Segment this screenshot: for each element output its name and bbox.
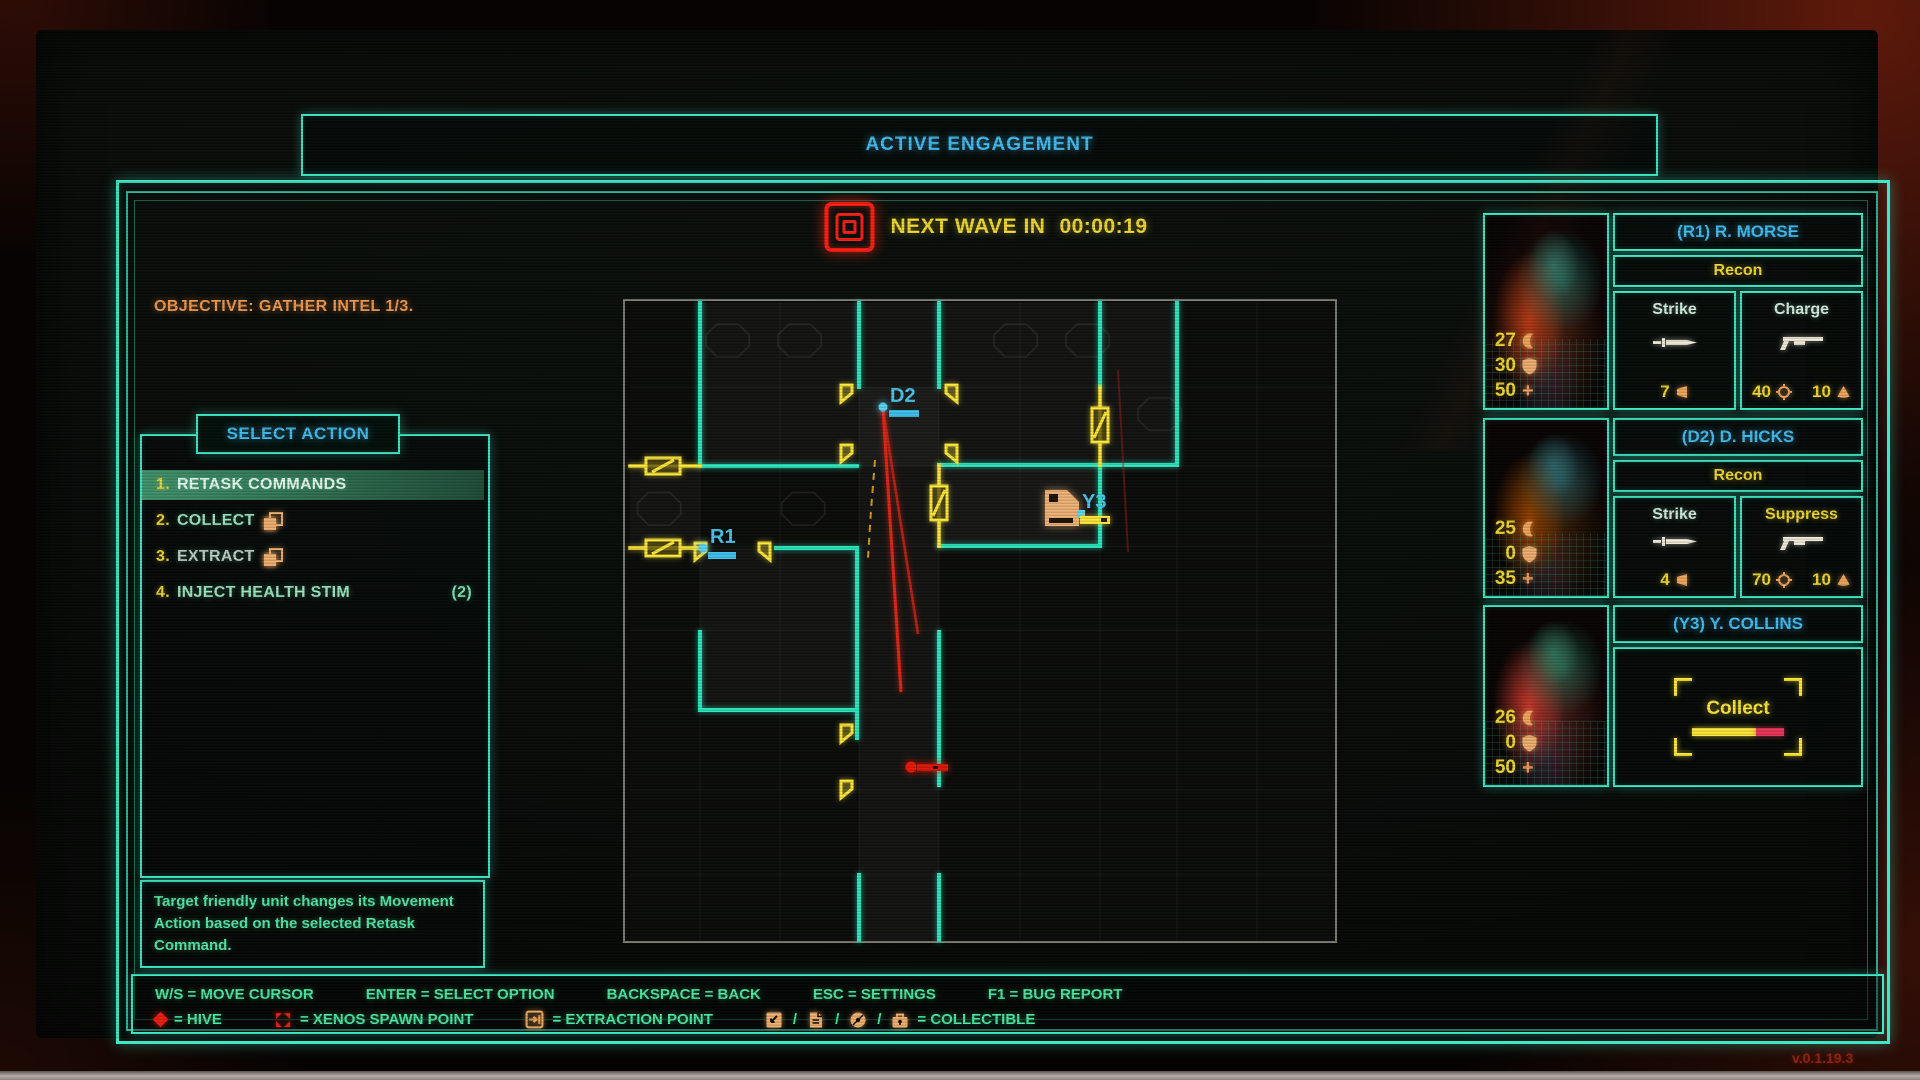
accuracy-icon <box>1776 384 1792 400</box>
hint-select-option: ENTER = SELECT OPTION <box>366 986 555 1003</box>
unit-portrait: 26 0 50 + <box>1483 605 1609 787</box>
claw-icon <box>1522 333 1538 349</box>
unit-action-box: Collect <box>1613 647 1863 787</box>
xenos-spawn-icon <box>274 1011 292 1029</box>
collect-label: Collect <box>1706 698 1769 720</box>
shield-stat: 30 <box>1490 355 1516 377</box>
unit-class: Recon <box>1613 255 1863 287</box>
ability-strike: Strike 4 <box>1613 496 1736 598</box>
hint-move-cursor: W/S = MOVE CURSOR <box>155 986 314 1003</box>
unit-label-r1: R1 <box>710 526 736 548</box>
legend-xenos-spawn: = XENOS SPAWN POINT <box>300 1011 474 1028</box>
blast-icon <box>1836 572 1851 587</box>
collectible-disc-icon <box>849 1011 867 1029</box>
accuracy-icon <box>1776 572 1792 588</box>
unit-label-d2: D2 <box>890 385 916 407</box>
unit-name: (R1) R. MORSE <box>1613 213 1863 251</box>
tactical-map: D2 R1 Y3 <box>616 290 1356 950</box>
page-title: ACTIVE ENGAGEMENT <box>865 134 1093 156</box>
claw-icon <box>1522 710 1538 726</box>
squad-card-y3: 26 0 50 + (Y3) Y. COLLINS Collect <box>1483 605 1863 787</box>
health-plus-icon: + <box>1522 569 1534 589</box>
unit-name: (D2) D. HICKS <box>1613 418 1863 456</box>
next-wave-timer: 00:00:19 <box>1059 215 1147 239</box>
blast-icon <box>1836 384 1851 399</box>
action-panel-title: SELECT ACTION <box>227 424 370 444</box>
unit-name: (Y3) Y. COLLINS <box>1613 605 1863 643</box>
shield-stat: 0 <box>1490 543 1516 565</box>
bracket-corner <box>1674 678 1692 696</box>
shotgun-icon <box>1780 333 1824 353</box>
shield-icon <box>1522 358 1537 375</box>
collectible-pages-icon <box>264 548 283 566</box>
desk-edge <box>0 1071 1920 1080</box>
attack-stat: 27 <box>1490 330 1516 352</box>
ability-strike: Strike 7 <box>1613 291 1736 410</box>
health-plus-icon: + <box>1522 758 1534 778</box>
legend-extraction: = EXTRACTION POINT <box>552 1011 712 1028</box>
hive-icon <box>153 1012 169 1028</box>
attack-stat: 25 <box>1490 518 1516 540</box>
hive-icon <box>824 202 874 252</box>
health-stat: 35 <box>1490 568 1516 590</box>
objective-text: OBJECTIVE: GATHER INTEL 1/3. <box>154 298 414 316</box>
health-stat: 50 <box>1490 757 1516 779</box>
menu-item-extract[interactable]: 3. EXTRACT <box>142 542 484 572</box>
shield-icon <box>1522 735 1537 752</box>
action-menu: 1. RETASK COMMANDS 2. COLLECT 3. EXTRACT… <box>142 470 484 608</box>
unit-label-y3: Y3 <box>1082 491 1106 513</box>
collectible-case-icon <box>891 1011 909 1029</box>
action-description-box: Target friendly unit changes its Movemen… <box>140 880 485 968</box>
ammo-icon <box>1675 385 1689 399</box>
health-plus-icon: + <box>1522 381 1534 401</box>
bracket-corner <box>1784 738 1802 756</box>
attack-stat: 26 <box>1490 707 1516 729</box>
ammo-icon <box>1675 573 1689 587</box>
shield-icon <box>1522 546 1537 563</box>
unit-portrait: 27 30 50 + <box>1483 213 1609 410</box>
unit-class: Recon <box>1613 460 1863 492</box>
claw-icon <box>1522 521 1538 537</box>
hints-bar: W/S = MOVE CURSOR ENTER = SELECT OPTION … <box>131 974 1884 1034</box>
ability-suppress: Suppress 70 10 <box>1740 496 1863 598</box>
hint-settings: ESC = SETTINGS <box>813 986 936 1003</box>
squad-card-d2: 25 0 35 + (D2) D. HICKS Recon Strike 4 <box>1483 418 1863 598</box>
version-label: v.0.1.19.3 <box>1792 1050 1853 1066</box>
menu-item-inject-health-stim[interactable]: 4. INJECT HEALTH STIM (2) <box>142 578 484 608</box>
legend-row: = HIVE = XENOS SPAWN POINT = EXTRACTION … <box>155 1007 1882 1032</box>
header-tab: ACTIVE ENGAGEMENT <box>301 114 1658 176</box>
crt-screen: ACTIVE ENGAGEMENT NEXT WAVE IN 00:00:19 … <box>36 30 1878 1038</box>
hint-bug-report: F1 = BUG REPORT <box>988 986 1123 1003</box>
health-stat: 50 <box>1490 380 1516 402</box>
knife-icon <box>1652 335 1698 350</box>
collectible-document-icon <box>807 1011 825 1029</box>
shotgun-icon <box>1780 533 1824 553</box>
legend-collectible: = COLLECTIBLE <box>917 1011 1035 1028</box>
next-wave-label: NEXT WAVE IN <box>890 215 1045 239</box>
collect-action-indicator: Collect <box>1674 678 1802 756</box>
shield-stat: 0 <box>1490 732 1516 754</box>
collectible-pages-icon <box>264 512 283 530</box>
knife-icon <box>1652 534 1698 549</box>
action-description: Target friendly unit changes its Movemen… <box>154 893 454 954</box>
legend-hive: = HIVE <box>174 1011 222 1028</box>
unit-portrait: 25 0 35 + <box>1483 418 1609 598</box>
squad-card-r1: 27 30 50 + (R1) R. MORSE Recon Strike 7 <box>1483 213 1863 410</box>
bracket-corner <box>1674 738 1692 756</box>
action-panel-title-box: SELECT ACTION <box>196 414 400 454</box>
collectible-terminal-icon <box>765 1011 783 1029</box>
stim-count: (2) <box>452 584 472 602</box>
next-wave-indicator: NEXT WAVE IN 00:00:19 <box>824 202 1147 252</box>
hint-back: BACKSPACE = BACK <box>607 986 761 1003</box>
key-hints-row: W/S = MOVE CURSOR ENTER = SELECT OPTION … <box>155 982 1882 1007</box>
menu-item-collect[interactable]: 2. COLLECT <box>142 506 484 536</box>
bracket-corner <box>1784 678 1802 696</box>
menu-item-retask-commands[interactable]: 1. RETASK COMMANDS <box>142 470 484 500</box>
collect-progress-bar <box>1692 728 1784 736</box>
extraction-point-icon <box>525 1010 544 1029</box>
ability-charge: Charge 40 10 <box>1740 291 1863 410</box>
